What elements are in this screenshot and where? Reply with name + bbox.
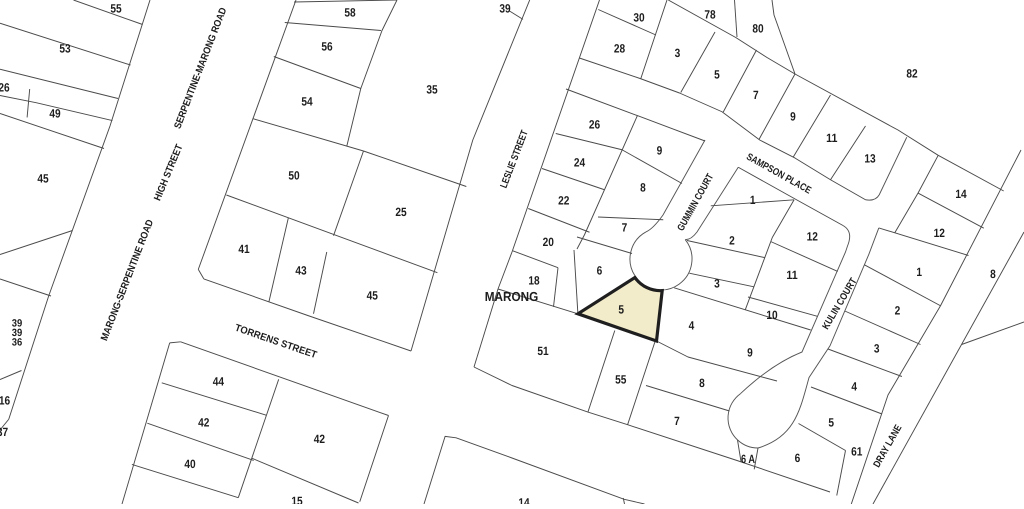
- svg-text:42: 42: [198, 416, 210, 430]
- svg-text:20: 20: [543, 235, 555, 249]
- svg-text:9: 9: [747, 345, 753, 359]
- svg-text:55: 55: [110, 1, 122, 15]
- svg-text:80: 80: [752, 21, 764, 35]
- svg-text:25: 25: [395, 205, 407, 219]
- svg-text:4: 4: [851, 379, 857, 393]
- svg-text:2: 2: [729, 234, 735, 248]
- svg-text:43: 43: [295, 263, 307, 277]
- svg-text:53: 53: [59, 41, 71, 55]
- svg-text:82: 82: [906, 66, 918, 80]
- svg-text:49: 49: [49, 106, 61, 120]
- svg-text:42: 42: [314, 432, 326, 446]
- svg-text:24: 24: [574, 155, 586, 169]
- svg-text:22: 22: [558, 194, 570, 208]
- svg-text:8: 8: [699, 376, 705, 390]
- svg-text:3: 3: [874, 342, 880, 356]
- svg-text:5: 5: [618, 302, 624, 316]
- svg-text:9: 9: [657, 143, 663, 157]
- svg-text:6 A: 6 A: [741, 452, 755, 466]
- svg-text:10: 10: [766, 308, 778, 322]
- svg-text:4: 4: [689, 318, 695, 332]
- svg-text:45: 45: [367, 288, 379, 302]
- svg-text:28: 28: [614, 41, 626, 55]
- svg-text:58: 58: [344, 5, 356, 19]
- svg-text:78: 78: [704, 7, 716, 21]
- svg-text:6: 6: [597, 264, 603, 278]
- svg-text:35: 35: [426, 82, 438, 96]
- svg-text:55: 55: [615, 373, 627, 387]
- svg-text:8: 8: [640, 180, 646, 194]
- svg-text:36: 36: [12, 337, 23, 349]
- svg-text:14: 14: [955, 187, 967, 201]
- svg-text:30: 30: [633, 10, 645, 24]
- svg-text:1: 1: [750, 193, 756, 207]
- svg-text:3: 3: [714, 277, 720, 291]
- svg-text:7: 7: [753, 88, 759, 102]
- svg-text:39: 39: [499, 1, 511, 15]
- svg-text:26: 26: [589, 117, 601, 131]
- svg-text:11: 11: [786, 268, 798, 282]
- svg-text:54: 54: [301, 94, 313, 108]
- svg-text:26: 26: [0, 80, 10, 94]
- svg-text:40: 40: [184, 457, 196, 471]
- svg-text:61: 61: [851, 444, 863, 458]
- svg-text:56: 56: [321, 39, 333, 53]
- svg-text:12: 12: [807, 229, 819, 243]
- svg-text:5: 5: [828, 416, 834, 430]
- svg-text:16: 16: [0, 393, 10, 407]
- svg-text:45: 45: [37, 171, 49, 185]
- svg-text:12: 12: [934, 226, 946, 240]
- svg-text:15: 15: [291, 494, 303, 504]
- svg-text:9: 9: [790, 109, 796, 123]
- svg-text:MARONG: MARONG: [485, 289, 539, 304]
- svg-text:6: 6: [795, 451, 801, 465]
- svg-text:8: 8: [990, 267, 996, 281]
- svg-text:50: 50: [288, 168, 300, 182]
- svg-text:41: 41: [238, 242, 250, 256]
- svg-text:13: 13: [864, 151, 876, 165]
- svg-text:37: 37: [0, 425, 8, 439]
- svg-text:44: 44: [213, 375, 225, 389]
- svg-text:7: 7: [622, 221, 628, 235]
- svg-text:5: 5: [714, 67, 720, 81]
- svg-text:1: 1: [916, 265, 922, 279]
- svg-text:14: 14: [518, 495, 530, 504]
- svg-text:3: 3: [675, 46, 681, 60]
- svg-text:18: 18: [528, 273, 540, 287]
- svg-text:51: 51: [537, 344, 549, 358]
- svg-text:11: 11: [826, 131, 838, 145]
- svg-text:7: 7: [674, 414, 680, 428]
- svg-text:2: 2: [895, 303, 901, 317]
